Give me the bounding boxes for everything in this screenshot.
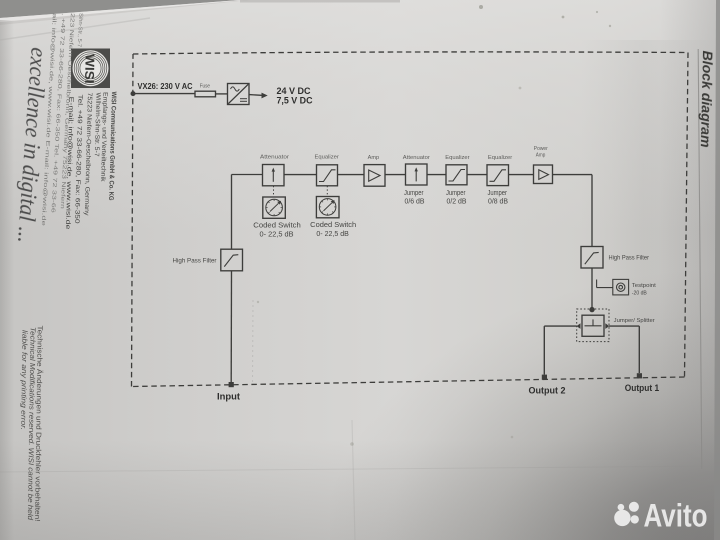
svg-text:7,5 V DC: 7,5 V DC xyxy=(277,96,313,106)
svg-text:Input: Input xyxy=(217,392,241,403)
svg-text:0- 22,5 dB: 0- 22,5 dB xyxy=(316,231,349,238)
svg-text:Amp: Amp xyxy=(536,153,546,159)
svg-text:Block diagram: Block diagram xyxy=(698,50,715,147)
svg-text:Output 2: Output 2 xyxy=(529,386,566,397)
svg-text:Attenuator: Attenuator xyxy=(403,155,430,161)
svg-text:Jumper: Jumper xyxy=(404,190,424,197)
svg-text:Fuse: Fuse xyxy=(200,84,210,90)
svg-text:VX26: 230 V AC: VX26: 230 V AC xyxy=(138,82,193,91)
svg-text:0/2 dB: 0/2 dB xyxy=(447,199,467,206)
svg-text:0/6 dB: 0/6 dB xyxy=(405,199,425,206)
svg-text:Output 1: Output 1 xyxy=(625,383,660,394)
svg-text:High Pass Filter: High Pass Filter xyxy=(173,258,217,265)
svg-text:liable for any printing error.: liable for any printing error. xyxy=(19,330,29,430)
svg-text:Attenuator: Attenuator xyxy=(260,155,289,161)
svg-text:Equalizer: Equalizer xyxy=(445,155,469,161)
svg-text:Jumper/ Splitter: Jumper/ Splitter xyxy=(614,318,655,324)
svg-text:Coded Switch: Coded Switch xyxy=(253,223,301,230)
svg-text:Equalizer: Equalizer xyxy=(315,155,339,161)
svg-text:Power: Power xyxy=(534,146,548,152)
svg-text:Jumper: Jumper xyxy=(446,190,466,197)
svg-text:High Pass Filter: High Pass Filter xyxy=(609,255,650,262)
svg-text:WISI: WISI xyxy=(82,54,98,84)
svg-text:0/8 dB: 0/8 dB xyxy=(488,199,508,206)
svg-text:Testpoint: Testpoint xyxy=(632,283,656,289)
svg-text:Jumper: Jumper xyxy=(488,190,508,197)
svg-text:24 V DC: 24 V DC xyxy=(277,86,311,96)
svg-text:Amp: Amp xyxy=(368,155,380,161)
svg-text:Coded Switch: Coded Switch xyxy=(310,222,356,229)
svg-text:-20 dB: -20 dB xyxy=(632,290,647,296)
svg-text:0- 22,5 dB: 0- 22,5 dB xyxy=(260,231,294,238)
svg-text:Avito: Avito xyxy=(644,498,708,534)
svg-text:Equalizer: Equalizer xyxy=(488,155,512,161)
